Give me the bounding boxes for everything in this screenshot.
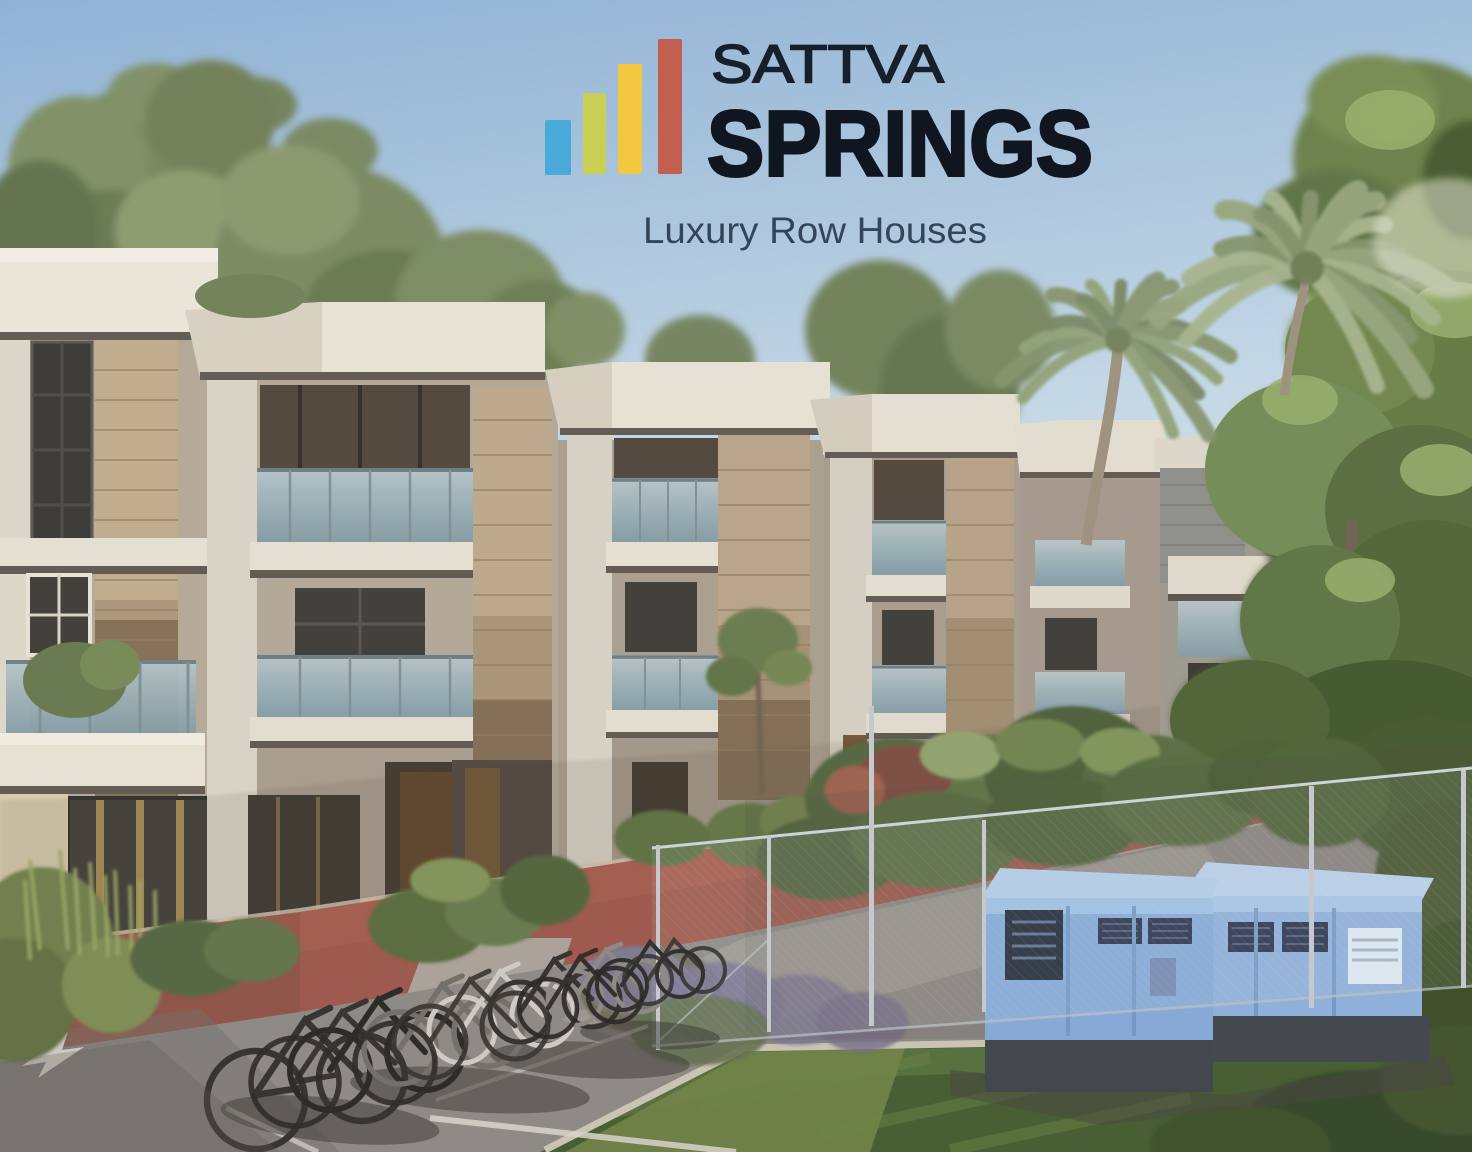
svg-text:SPRINGS: SPRINGS [707,92,1093,196]
svg-text:Luxury Row Houses: Luxury Row Houses [643,210,987,251]
svg-text:SATTVA: SATTVA [711,35,944,95]
